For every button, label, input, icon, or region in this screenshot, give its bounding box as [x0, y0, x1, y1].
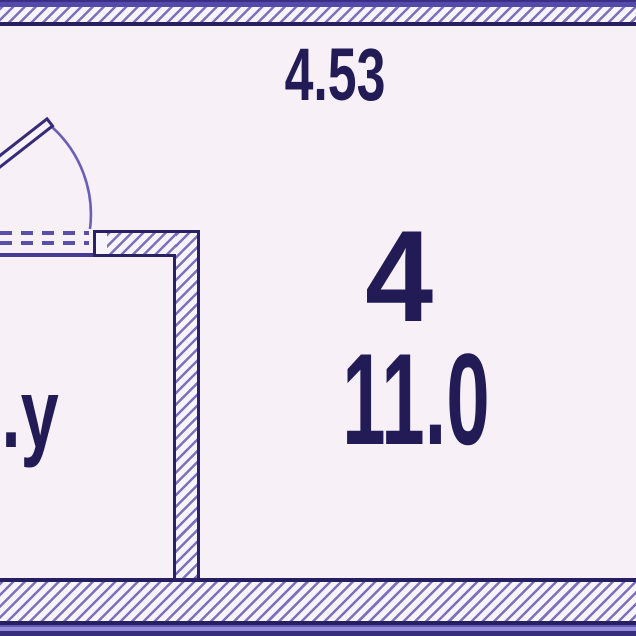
top-exterior-wall: [0, 0, 636, 26]
doorway-dashed-line-upper: [0, 231, 89, 235]
top-wall-hatch: [0, 7, 636, 22]
doorway-sill-line: [0, 253, 93, 257]
room-area-label: 11.0: [293, 334, 493, 464]
bathroom-label-value: С.у: [0, 364, 59, 462]
room-number-label: 4: [299, 211, 499, 341]
interior-vertical-wall: [173, 230, 200, 581]
door-leaf: [0, 119, 53, 201]
bottom-exterior-wall: [0, 578, 636, 636]
bottom-wall-purple-band: [0, 625, 636, 636]
bottom-wall-hatch: [0, 582, 636, 621]
room-area-value: 11.0: [342, 334, 490, 464]
door-jamb-cap: [96, 233, 107, 254]
doorway-dashed-line-lower: [0, 241, 89, 245]
interior-horizontal-wall: [93, 230, 176, 257]
top-dimension-label: 4.53: [235, 38, 435, 112]
door-swing-arc: [52, 127, 91, 229]
room-number-value: 4: [365, 211, 433, 341]
top-wall-purple-band: [0, 0, 636, 7]
bathroom-label: С.у: [0, 364, 152, 462]
top-dimension-value: 4.53: [285, 38, 386, 112]
